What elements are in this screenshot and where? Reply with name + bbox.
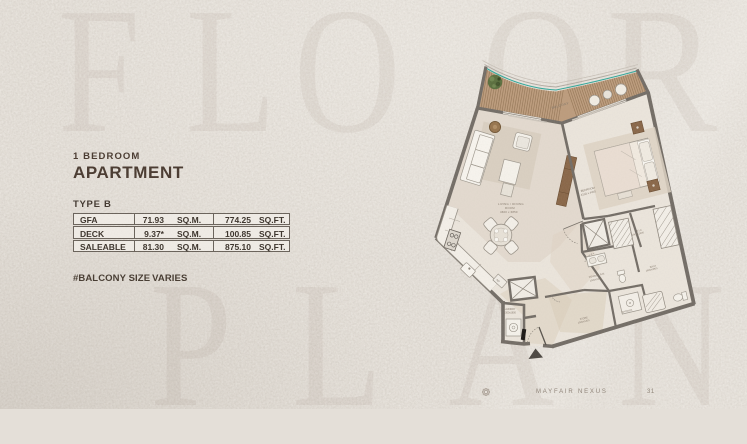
svg-text:1500x1600: 1500x1600	[504, 311, 517, 314]
svg-text:4600 x 6850: 4600 x 6850	[500, 210, 518, 214]
